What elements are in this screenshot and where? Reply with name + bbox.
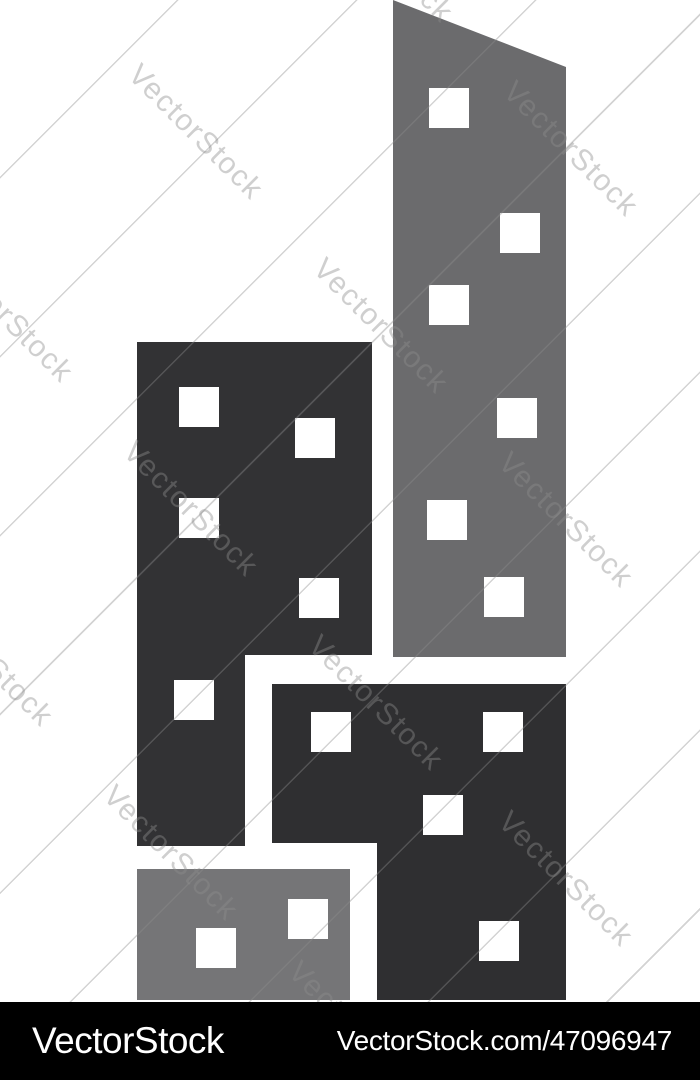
bottom-right-dark-building-window [311, 712, 351, 752]
tall-gray-building-window [484, 577, 524, 617]
tall-gray-building-window [429, 285, 469, 325]
bottom-right-dark-building-window [423, 795, 463, 835]
footer-brand-logo: VectorStock [32, 1020, 224, 1062]
bottom-left-gray-building-window [196, 928, 236, 968]
tall-gray-building-window [429, 88, 469, 128]
tall-gray-building-window [500, 213, 540, 253]
tall-gray-building-window [497, 398, 537, 438]
bottom-right-dark-building-window [483, 712, 523, 752]
tall-gray-building [393, 0, 566, 657]
left-dark-building-window [295, 418, 335, 458]
left-dark-building-window [174, 680, 214, 720]
bottom-left-gray-building-window [288, 899, 328, 939]
bottom-right-dark-building-window [479, 921, 519, 961]
stock-image-preview: VectorStockVectorStockVectorStockVectorS… [0, 0, 700, 1080]
footer-bar: VectorStock VectorStock.com/47096947 [0, 1002, 700, 1080]
left-dark-building-window [179, 498, 219, 538]
tall-gray-building-window [427, 500, 467, 540]
footer-image-url: VectorStock.com/47096947 [337, 1025, 672, 1057]
buildings-artwork [0, 0, 700, 1080]
left-dark-building-window [179, 387, 219, 427]
left-dark-building-window [299, 578, 339, 618]
